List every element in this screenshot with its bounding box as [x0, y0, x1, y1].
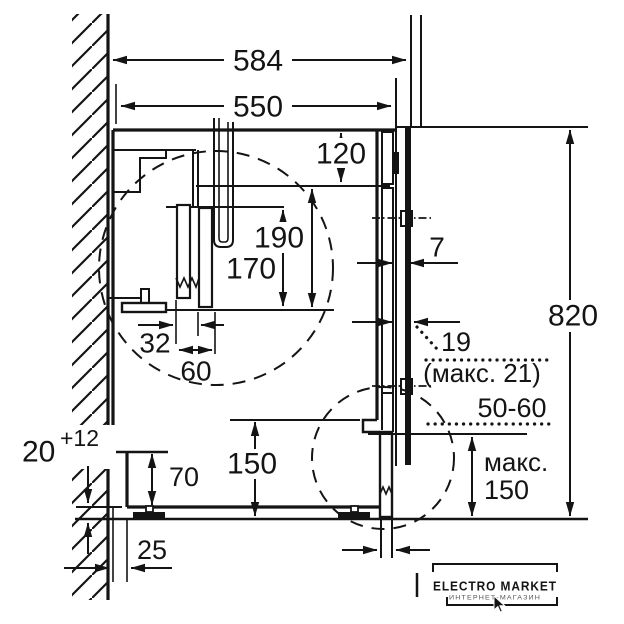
dim-70: 70	[152, 454, 208, 505]
inlet-hose-inner	[219, 118, 228, 242]
dim-max-150-value: 150	[484, 475, 529, 505]
machine-front-bottom-step	[363, 420, 380, 432]
detail-foot-base	[122, 303, 166, 312]
dim-60-label: 60	[180, 356, 211, 387]
wall-hatch	[72, 14, 108, 600]
right-foot-stem	[351, 506, 358, 512]
dim-60: 60	[179, 350, 212, 387]
plinth-detail	[380, 432, 392, 517]
dim-25-label: 25	[137, 535, 167, 565]
dim-50-60: 50-60	[428, 393, 552, 424]
inlet-hose-outer	[214, 118, 233, 247]
logo-title: ELECTRO MARKET	[433, 579, 557, 594]
dim-150-bottom-label: 150	[227, 448, 277, 481]
dim-820: 820	[546, 130, 600, 516]
dim-550: 550	[116, 84, 391, 124]
logo-top-bracket	[433, 564, 557, 572]
door-upper-section	[382, 132, 393, 184]
detail-foot-stem	[141, 289, 149, 303]
dim-32-label: 32	[139, 328, 170, 359]
dim-19-label: 19	[441, 327, 471, 357]
installation-drawing: 584 550 120 190 170 32 60 7 820	[0, 0, 624, 624]
dim-19-max-label: (макс. 21)	[423, 358, 541, 388]
left-foot-base	[133, 512, 165, 519]
machine-back-top-step	[113, 150, 166, 192]
dim-70-label: 70	[169, 462, 199, 492]
dim-50-60-label: 50-60	[477, 393, 546, 423]
dim-20-tolerance-label: +12	[60, 425, 99, 451]
dim-190-label: 190	[254, 222, 304, 255]
hinge-block	[394, 152, 399, 174]
dim-120: 120	[311, 133, 371, 182]
diagram-canvas: 584 550 120 190 170 32 60 7 820	[0, 0, 624, 624]
dim-820-label: 820	[548, 300, 598, 333]
dim-20-label: 20	[22, 436, 55, 469]
left-foot-stem	[146, 506, 153, 512]
dim-584-label: 584	[233, 45, 283, 78]
standpipe	[199, 208, 212, 307]
dim-120-label: 120	[316, 138, 366, 171]
dim-584: 584	[113, 44, 406, 78]
dim-7-label: 7	[429, 232, 445, 263]
dim-150-bottom: 150	[224, 420, 360, 516]
dim-19-leader-dots	[417, 327, 437, 349]
furniture-door-panel	[405, 128, 411, 465]
logo-electro-market: ELECTRO MARKET ИНТЕРНЕТ-МАГАЗИН	[417, 564, 557, 612]
dim-32: 32	[138, 325, 224, 359]
dim-max-150-word: макс.	[484, 447, 548, 477]
wall	[72, 14, 108, 600]
dim-170-label: 170	[226, 253, 276, 286]
plinth-bracket	[380, 432, 392, 517]
dim-550-label: 550	[233, 91, 283, 124]
